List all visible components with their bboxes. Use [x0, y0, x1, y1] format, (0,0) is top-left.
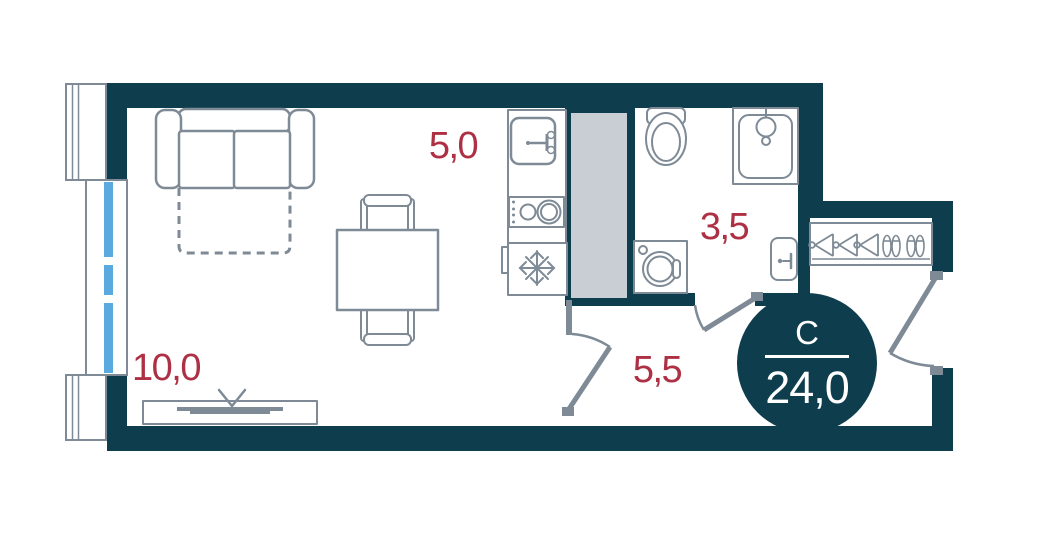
chair-top [361, 195, 414, 233]
door-swing-arc [695, 305, 704, 330]
window [86, 180, 127, 375]
ventilation-shaft [571, 113, 627, 298]
total-area-badge: С 24,0 [737, 293, 877, 433]
fridge [502, 243, 567, 295]
window-glazing [104, 182, 113, 373]
wardrobe [809, 223, 932, 265]
floor-plan: 5,0 3,5 5,5 10,0 С 24,0 [0, 0, 1053, 537]
entrance-door [890, 271, 943, 375]
chair-bottom [361, 307, 414, 345]
tv [177, 407, 283, 411]
shower-cabin-icon [733, 108, 798, 184]
kitchen-area-label: 5,0 [429, 127, 477, 165]
door-swing-arc [572, 334, 610, 347]
total-area-value: 24,0 [765, 365, 849, 410]
hallway-area-label: 5,5 [633, 351, 681, 389]
floor-plan-drawing [0, 0, 1053, 537]
pull-out-bed-dashed [179, 188, 290, 253]
kitchen-counter [502, 110, 567, 295]
door-leaf [567, 347, 610, 412]
cooktop-burners-icon [509, 197, 564, 227]
door-swing-arc [890, 353, 934, 366]
living-room-area-label: 10,0 [132, 349, 200, 387]
bathroom-basin-icon [771, 238, 797, 280]
dining-table [337, 230, 438, 310]
kitchen-sink-icon [511, 118, 555, 164]
washing-machine-icon [634, 241, 687, 293]
toilet-icon [646, 108, 686, 165]
apartment-type-label: С [795, 316, 819, 349]
sofa [156, 109, 314, 188]
door-leaf [890, 277, 936, 353]
badge-divider [765, 355, 849, 358]
living-hall-door [562, 300, 610, 416]
bathroom-area-label: 3,5 [700, 208, 748, 246]
tv-stand [143, 390, 317, 424]
